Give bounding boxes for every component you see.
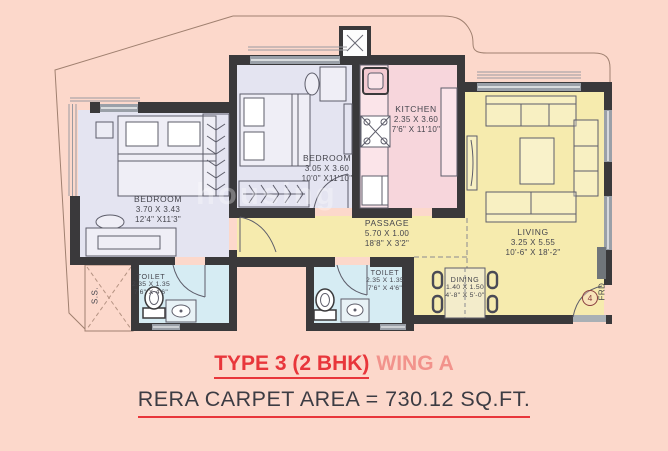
- toilet1-metric: 2.35 X 1.35: [116, 281, 186, 289]
- living-label: LIVING 3.25 X 5.55 10'-6" X 18'-2": [473, 227, 593, 258]
- bedroom2-label: BEDROOM 3.05 X 3.60 10'0" X11'10": [267, 153, 387, 184]
- duct-shaft: [341, 28, 369, 58]
- toilet2-metric: 2.35 X 1.35: [350, 277, 420, 285]
- dining-name: DINING: [431, 275, 499, 284]
- toilet2-name: TOILET: [350, 268, 420, 277]
- toilet1-label: TOILET 2.35 X 1.35 7'6" X 4'6": [116, 272, 186, 298]
- kitchen-label: KITCHEN 2.35 X 3.60 7'6" X 11'10": [366, 104, 466, 135]
- entrance-door-type-label: FRD: [598, 272, 607, 312]
- kitchen-metric: 2.35 X 3.60: [366, 115, 466, 125]
- dining-metric: 1.40 X 1.50: [431, 284, 499, 292]
- service-shaft-label: S.S.: [91, 276, 100, 316]
- bedroom1-imperial: 12'4" X11'3": [98, 215, 218, 225]
- toilet1-imperial: 7'6" X 4'6": [116, 289, 186, 297]
- passage-metric: 5.70 X 1.00: [327, 229, 447, 239]
- passage-label: PASSAGE 5.70 X 1.00 18'8" X 3'2": [327, 218, 447, 249]
- title-block: TYPE 3 (2 BHK)WING A RERA CARPET AREA = …: [0, 352, 668, 418]
- passage-name: PASSAGE: [327, 218, 447, 229]
- entrance-door-number-badge: 4: [582, 290, 598, 306]
- bedroom2-name: BEDROOM: [267, 153, 387, 164]
- living-name: LIVING: [473, 227, 593, 238]
- passage-imperial: 18'8" X 3'2": [327, 239, 447, 249]
- toilet1-name: TOILET: [116, 272, 186, 281]
- bedroom2-metric: 3.05 X 3.60: [267, 164, 387, 174]
- kitchen-name: KITCHEN: [366, 104, 466, 115]
- living-imperial: 10'-6" X 18'-2": [473, 248, 593, 258]
- bedroom1-label: BEDROOM 3.70 X 3.43 12'4" X11'3": [98, 194, 218, 225]
- bedroom1-metric: 3.70 X 3.43: [98, 205, 218, 215]
- unit-type-label: TYPE 3 (2 BHK): [214, 352, 369, 379]
- wing-label: WING A: [376, 352, 453, 375]
- bedroom2-imperial: 10'0" X11'10": [267, 174, 387, 184]
- toilet2-label: TOILET 2.35 X 1.35 7'6" X 4'6": [350, 268, 420, 294]
- carpet-area-label: RERA CARPET AREA = 730.12 SQ.FT.: [138, 387, 531, 418]
- dining-label: DINING 1.40 X 1.50 4'-8" X 5'-0": [431, 275, 499, 301]
- title-line1: TYPE 3 (2 BHK)WING A: [0, 352, 668, 376]
- toilet2-imperial: 7'6" X 4'6": [350, 285, 420, 293]
- bedroom1-name: BEDROOM: [98, 194, 218, 205]
- title-line2: RERA CARPET AREA = 730.12 SQ.FT.: [0, 387, 668, 418]
- dining-imperial: 4'-8" X 5'-0": [431, 292, 499, 300]
- floor-plan-canvas: housing BEDROOM 3.70 X 3.43 12'4" X11'3"…: [0, 0, 668, 451]
- living-metric: 3.25 X 5.55: [473, 238, 593, 248]
- kitchen-imperial: 7'6" X 11'10": [366, 125, 466, 135]
